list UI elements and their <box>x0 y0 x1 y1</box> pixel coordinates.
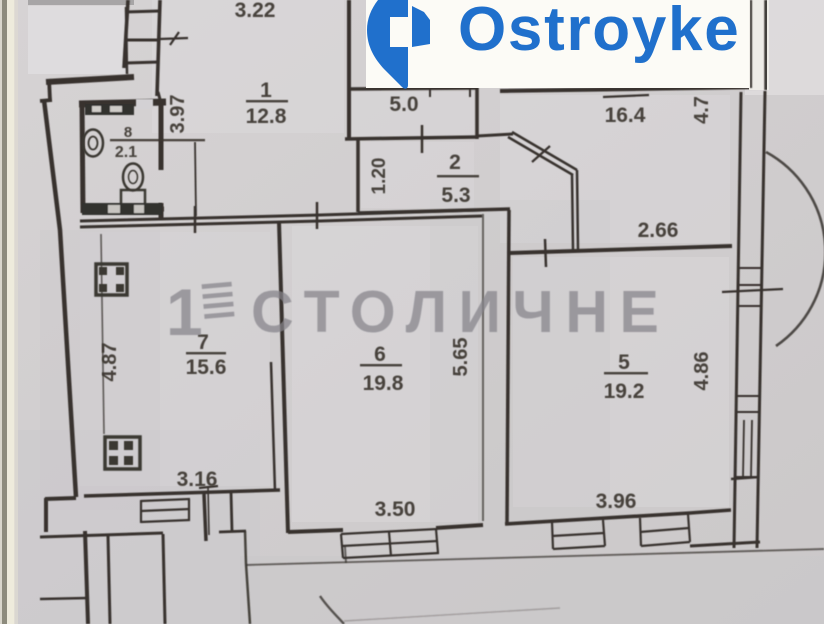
svg-text:4.87: 4.87 <box>99 343 121 382</box>
svg-text:12.8: 12.8 <box>246 105 287 128</box>
svg-text:2: 2 <box>449 151 461 174</box>
svg-text:1: 1 <box>166 275 203 349</box>
svg-text:1.20: 1.20 <box>369 158 390 195</box>
svg-text:3.97: 3.97 <box>167 95 189 134</box>
svg-text:8: 8 <box>124 124 132 141</box>
svg-text:4.7: 4.7 <box>691 96 713 124</box>
svg-text:3.96: 3.96 <box>596 490 637 513</box>
svg-text:3.50: 3.50 <box>375 498 416 521</box>
svg-text:5: 5 <box>618 351 630 374</box>
svg-text:5.0: 5.0 <box>389 93 418 116</box>
svg-text:4.86: 4.86 <box>691 352 713 391</box>
svg-text:3.22: 3.22 <box>235 0 276 22</box>
svg-text:5.3: 5.3 <box>441 184 470 207</box>
svg-text:2.66: 2.66 <box>638 219 679 242</box>
svg-text:СТОЛИЧНЕ: СТОЛИЧНЕ <box>251 279 670 345</box>
svg-text:19.8: 19.8 <box>363 372 404 395</box>
svg-text:1: 1 <box>260 79 272 102</box>
svg-text:2.1: 2.1 <box>115 144 137 161</box>
svg-text:15.6: 15.6 <box>186 356 227 379</box>
svg-text:16.4: 16.4 <box>605 104 646 127</box>
svg-text:Ostroyke: Ostroyke <box>458 0 740 64</box>
svg-text:19.2: 19.2 <box>604 380 645 403</box>
svg-text:6: 6 <box>374 343 386 366</box>
svg-text:3.16: 3.16 <box>177 468 218 491</box>
